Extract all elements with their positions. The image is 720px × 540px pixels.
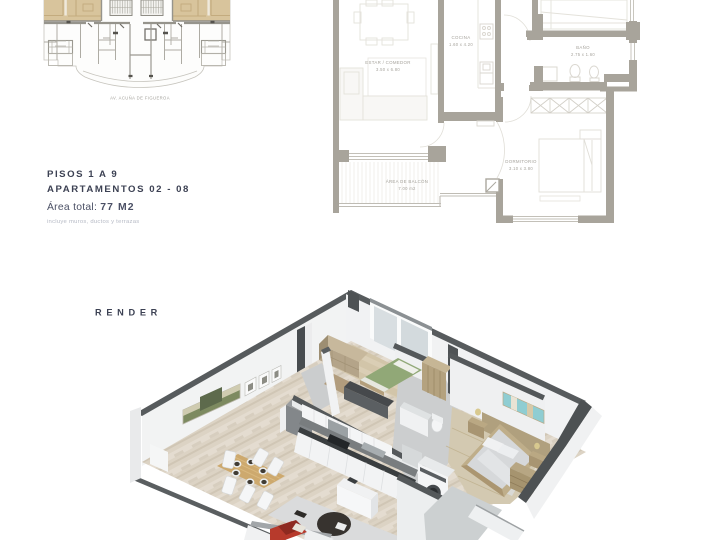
svg-text:RENDER: RENDER xyxy=(95,308,162,318)
svg-text:3.50 x 6.80: 3.50 x 6.80 xyxy=(376,67,400,72)
svg-text:3.10 x 3.80: 3.10 x 3.80 xyxy=(509,166,533,171)
svg-text:7.00 m2: 7.00 m2 xyxy=(398,186,416,191)
svg-text:1.60 x 4.20: 1.60 x 4.20 xyxy=(449,42,473,47)
svg-text:AV. ACUÑA DE FIGUEROA: AV. ACUÑA DE FIGUEROA xyxy=(110,96,170,101)
svg-text:incluye muros, ductos y terraz: incluye muros, ductos y terrazas xyxy=(47,219,139,225)
svg-text:ESTAR / COMEDOR: ESTAR / COMEDOR xyxy=(365,60,410,65)
svg-text:Área total: 77 M2: Área total: 77 M2 xyxy=(47,200,135,213)
svg-text:APARTAMENTOS 02 - 08: APARTAMENTOS 02 - 08 xyxy=(47,184,190,195)
svg-text:PISOS 1 A 9: PISOS 1 A 9 xyxy=(47,169,118,180)
svg-text:2.75 x 1.60: 2.75 x 1.60 xyxy=(571,52,595,57)
svg-text:DORMITORIO: DORMITORIO xyxy=(505,159,537,164)
svg-text:ÁREA DE BALCÓN: ÁREA DE BALCÓN xyxy=(386,179,429,184)
svg-text:BAÑO: BAÑO xyxy=(576,45,590,50)
svg-text:COCINA: COCINA xyxy=(452,35,471,40)
